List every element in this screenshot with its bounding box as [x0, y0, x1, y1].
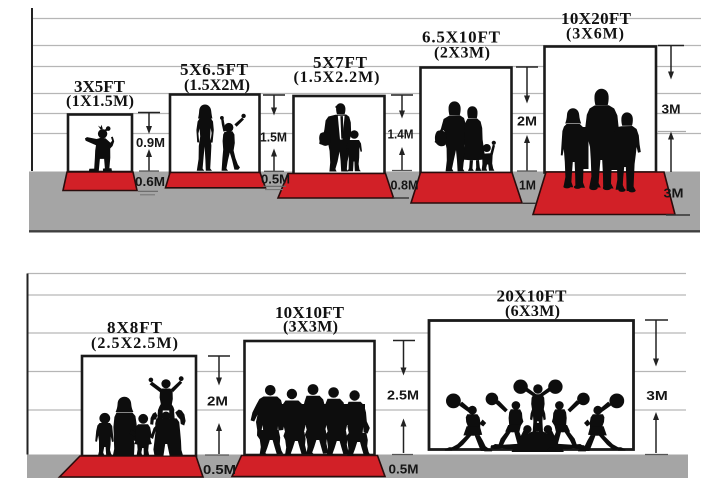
svg-text:0.5M: 0.5M — [261, 173, 290, 187]
svg-text:1M: 1M — [519, 179, 536, 193]
svg-text:2.5M: 2.5M — [387, 389, 419, 403]
svg-text:(1X1.5M): (1X1.5M) — [66, 93, 134, 110]
svg-text:1.4M: 1.4M — [388, 128, 414, 142]
svg-text:3M: 3M — [664, 187, 684, 201]
svg-text:3M: 3M — [662, 103, 681, 117]
svg-text:(1.5X2M): (1.5X2M) — [184, 77, 250, 94]
svg-text:0.6M: 0.6M — [135, 175, 165, 189]
svg-text:(3X3M): (3X3M) — [283, 319, 338, 336]
svg-text:0.9M: 0.9M — [136, 136, 165, 150]
svg-text:(2.5X2.5M): (2.5X2.5M) — [91, 335, 178, 352]
svg-text:3M: 3M — [646, 389, 668, 403]
svg-text:0.8M: 0.8M — [391, 179, 419, 193]
svg-text:0.5M: 0.5M — [203, 463, 236, 477]
svg-text:(1.5X2.2M): (1.5X2.2M) — [294, 69, 380, 86]
svg-text:2M: 2M — [207, 395, 228, 409]
svg-text:(3X6M): (3X6M) — [566, 26, 624, 43]
svg-text:2M: 2M — [517, 115, 537, 129]
svg-text:0.5M: 0.5M — [389, 463, 419, 477]
svg-text:(2X3M): (2X3M) — [434, 45, 490, 62]
svg-text:1.5M: 1.5M — [260, 131, 287, 145]
svg-text:(6X3M): (6X3M) — [505, 303, 560, 320]
